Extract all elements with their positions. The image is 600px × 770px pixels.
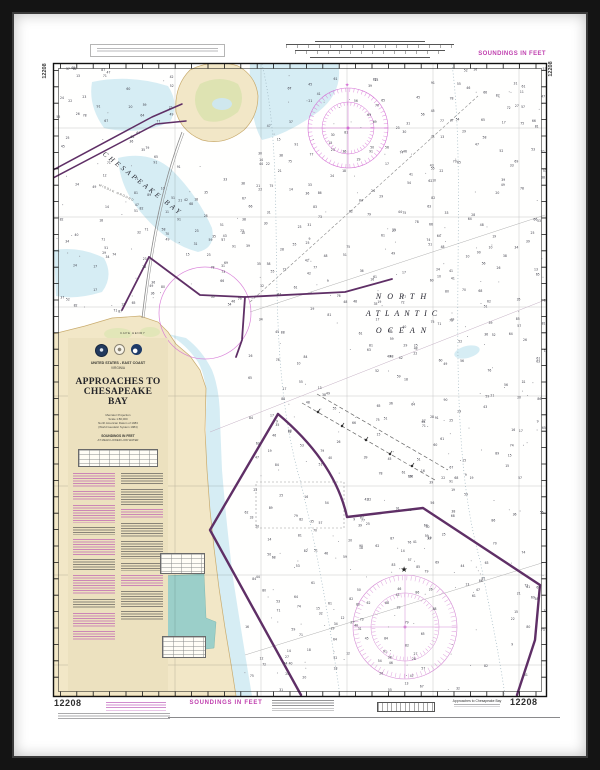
svg-text:25: 25	[414, 343, 418, 347]
svg-text:31: 31	[358, 627, 362, 631]
notes-column-left	[73, 473, 116, 644]
svg-text:15: 15	[186, 253, 190, 257]
label-north-atlantic-ocean: NORTH ATLANTIC OCEAN	[356, 288, 452, 339]
svg-text:82: 82	[299, 518, 303, 522]
svg-text:58: 58	[535, 597, 539, 601]
svg-text:46: 46	[389, 661, 393, 665]
svg-text:74: 74	[510, 444, 514, 448]
notes-column-right	[121, 473, 164, 644]
svg-text:49: 49	[326, 392, 330, 396]
svg-text:29: 29	[462, 129, 466, 133]
svg-text:71: 71	[277, 608, 281, 612]
svg-text:81: 81	[542, 322, 546, 326]
svg-text:20: 20	[285, 672, 289, 676]
svg-text:47: 47	[267, 124, 271, 128]
svg-text:74: 74	[426, 238, 430, 242]
svg-text:63: 63	[256, 441, 260, 445]
svg-text:70: 70	[462, 288, 466, 292]
svg-text:91: 91	[153, 160, 157, 164]
svg-text:86: 86	[537, 397, 541, 401]
svg-text:62: 62	[375, 544, 379, 548]
svg-text:12: 12	[341, 616, 345, 620]
svg-text:61: 61	[381, 233, 385, 237]
svg-text:14: 14	[289, 188, 293, 192]
svg-text:31: 31	[307, 223, 311, 227]
svg-text:91: 91	[177, 218, 181, 222]
svg-text:63: 63	[427, 205, 431, 209]
svg-text:74: 74	[112, 253, 116, 257]
svg-text:37: 37	[289, 120, 293, 124]
svg-text:91: 91	[369, 149, 373, 153]
svg-text:23: 23	[207, 253, 211, 257]
svg-text:35: 35	[275, 423, 279, 427]
svg-text:70: 70	[313, 529, 317, 533]
svg-text:25: 25	[442, 533, 446, 537]
svg-text:89: 89	[495, 452, 499, 456]
svg-text:87: 87	[118, 309, 122, 313]
svg-text:78: 78	[83, 114, 87, 118]
title-block-state: VIRGINIA	[73, 366, 163, 370]
svg-text:23: 23	[298, 225, 302, 229]
svg-text:67: 67	[136, 131, 140, 135]
svg-text:9: 9	[353, 518, 355, 522]
svg-text:76: 76	[337, 294, 341, 298]
svg-text:74: 74	[297, 605, 301, 609]
svg-text:51: 51	[428, 243, 432, 247]
svg-text:75: 75	[402, 211, 406, 215]
bottom-left-fine-print	[58, 713, 170, 720]
svg-text:20: 20	[495, 191, 499, 195]
svg-text:19: 19	[268, 449, 272, 453]
svg-text:58: 58	[267, 262, 271, 266]
svg-text:14: 14	[401, 549, 405, 553]
svg-text:22: 22	[266, 162, 270, 166]
svg-text:81: 81	[369, 343, 373, 347]
svg-text:17: 17	[502, 121, 506, 125]
svg-text:81: 81	[535, 125, 539, 129]
svg-text:70: 70	[453, 159, 457, 163]
svg-text:49: 49	[501, 183, 505, 187]
svg-text:66: 66	[483, 90, 487, 94]
svg-text:66: 66	[352, 421, 356, 425]
svg-text:46: 46	[272, 434, 276, 438]
svg-text:18: 18	[194, 198, 198, 202]
svg-text:66: 66	[533, 218, 537, 222]
svg-text:77: 77	[310, 152, 314, 156]
svg-text:13: 13	[465, 582, 469, 586]
svg-text:65: 65	[71, 66, 75, 70]
svg-text:71: 71	[299, 633, 303, 637]
svg-text:83: 83	[313, 205, 317, 209]
svg-text:26: 26	[523, 338, 527, 342]
svg-text:52: 52	[375, 369, 379, 373]
svg-text:68: 68	[272, 555, 276, 559]
svg-text:38: 38	[451, 510, 455, 514]
svg-text:21: 21	[256, 184, 260, 188]
svg-text:91: 91	[232, 245, 236, 249]
svg-text:39: 39	[501, 178, 505, 182]
svg-text:67: 67	[277, 292, 281, 296]
svg-text:26: 26	[337, 440, 341, 444]
svg-text:45: 45	[275, 330, 279, 334]
svg-text:55: 55	[211, 295, 215, 299]
svg-text:9: 9	[537, 420, 539, 424]
title-block-table	[78, 449, 158, 467]
svg-text:50: 50	[357, 588, 361, 592]
svg-text:79: 79	[294, 514, 298, 518]
svg-text:26: 26	[497, 266, 501, 270]
svg-text:14: 14	[267, 538, 271, 542]
svg-text:47: 47	[255, 456, 259, 460]
svg-text:54: 54	[407, 181, 411, 185]
svg-text:47: 47	[107, 71, 111, 75]
svg-text:24: 24	[60, 96, 64, 100]
svg-text:77: 77	[313, 266, 317, 270]
svg-text:22: 22	[511, 617, 515, 621]
svg-text:68: 68	[454, 476, 458, 480]
svg-text:16: 16	[245, 625, 249, 629]
svg-text:12: 12	[260, 657, 264, 661]
svg-text:45: 45	[308, 83, 312, 87]
svg-text:13: 13	[405, 681, 409, 685]
svg-text:51: 51	[134, 209, 138, 213]
svg-text:70: 70	[493, 542, 497, 546]
svg-text:45: 45	[388, 457, 392, 461]
svg-text:52: 52	[458, 340, 462, 344]
svg-text:62: 62	[245, 511, 249, 515]
svg-text:20: 20	[379, 672, 383, 676]
svg-text:36: 36	[360, 269, 364, 273]
svg-text:34: 34	[106, 255, 110, 259]
svg-text:51: 51	[417, 458, 421, 462]
svg-text:50: 50	[426, 525, 430, 529]
svg-text:84: 84	[384, 636, 388, 640]
svg-text:72: 72	[262, 662, 266, 666]
svg-text:91: 91	[435, 416, 439, 420]
svg-text:66: 66	[130, 135, 134, 139]
svg-text:54: 54	[325, 501, 329, 505]
svg-text:57: 57	[517, 324, 521, 328]
svg-text:82: 82	[431, 196, 435, 200]
svg-text:15: 15	[277, 138, 281, 142]
svg-text:9: 9	[465, 473, 467, 477]
svg-text:26: 26	[409, 475, 413, 479]
svg-text:86: 86	[479, 579, 483, 583]
svg-text:80: 80	[526, 625, 530, 629]
svg-text:91: 91	[97, 104, 101, 108]
svg-text:23: 23	[396, 126, 400, 130]
svg-text:39: 39	[246, 244, 250, 248]
svg-text:11: 11	[520, 90, 524, 94]
svg-text:85: 85	[516, 317, 520, 321]
svg-text:29: 29	[379, 195, 383, 199]
svg-text:50: 50	[370, 145, 374, 149]
svg-text:45: 45	[431, 109, 435, 113]
label-cape-henry: CAPE HENRY	[120, 331, 145, 335]
svg-text:70: 70	[165, 232, 169, 236]
svg-text:82: 82	[356, 603, 360, 607]
svg-text:83: 83	[392, 563, 396, 567]
svg-text:35: 35	[257, 262, 261, 266]
svg-text:60: 60	[430, 278, 434, 282]
svg-text:42: 42	[170, 75, 174, 79]
title-block-notes	[73, 473, 163, 644]
svg-text:82: 82	[74, 303, 78, 307]
svg-text:31: 31	[514, 82, 518, 86]
svg-text:61: 61	[402, 470, 406, 474]
svg-text:88: 88	[281, 331, 285, 335]
bottom-title-subtext	[454, 704, 500, 707]
svg-text:67: 67	[104, 119, 108, 123]
svg-text:38: 38	[279, 153, 283, 157]
svg-text:48: 48	[306, 401, 310, 405]
svg-text:87: 87	[390, 536, 394, 540]
svg-text:29: 29	[331, 627, 335, 631]
svg-text:34: 34	[65, 240, 69, 244]
svg-text:90: 90	[444, 398, 448, 402]
svg-text:30: 30	[264, 222, 268, 226]
svg-text:57: 57	[421, 667, 425, 671]
svg-text:15: 15	[514, 610, 518, 614]
svg-text:89: 89	[269, 506, 273, 510]
svg-text:35: 35	[212, 235, 216, 239]
svg-text:91: 91	[294, 142, 298, 146]
svg-text:78: 78	[450, 97, 454, 101]
svg-text:52: 52	[333, 656, 337, 660]
svg-text:27: 27	[392, 229, 396, 233]
svg-text:42: 42	[399, 356, 403, 360]
svg-text:39: 39	[364, 456, 368, 460]
svg-text:30: 30	[402, 130, 406, 134]
svg-text:82: 82	[349, 597, 353, 601]
svg-text:38: 38	[241, 182, 245, 186]
svg-text:78: 78	[520, 187, 524, 191]
svg-text:66: 66	[249, 204, 253, 208]
svg-text:78: 78	[379, 471, 383, 475]
svg-text:48: 48	[480, 223, 484, 227]
svg-text:59: 59	[143, 103, 147, 107]
svg-text:48: 48	[441, 245, 445, 249]
svg-text:38: 38	[388, 656, 392, 660]
title-block-nation: UNITED STATES - EAST COAST	[73, 361, 163, 365]
svg-text:45: 45	[61, 144, 65, 148]
svg-text:25: 25	[449, 419, 453, 423]
svg-text:21: 21	[490, 394, 494, 398]
svg-text:22: 22	[253, 488, 257, 492]
svg-text:82: 82	[60, 218, 64, 222]
svg-text:58: 58	[483, 136, 487, 140]
svg-text:61: 61	[311, 581, 315, 585]
svg-text:33: 33	[223, 178, 227, 182]
svg-text:65: 65	[421, 632, 425, 636]
svg-text:44: 44	[256, 575, 260, 579]
svg-text:29: 29	[403, 343, 407, 347]
svg-text:41: 41	[449, 269, 453, 273]
svg-text:13: 13	[440, 135, 444, 139]
svg-text:65: 65	[248, 376, 252, 380]
svg-text:74: 74	[521, 550, 525, 554]
svg-text:32: 32	[456, 687, 460, 691]
svg-text:36: 36	[484, 333, 488, 337]
svg-text:56: 56	[421, 113, 425, 117]
svg-text:28: 28	[280, 248, 284, 252]
svg-text:21: 21	[308, 99, 312, 103]
svg-text:82: 82	[304, 549, 308, 553]
svg-text:63: 63	[485, 561, 489, 565]
svg-text:65: 65	[481, 118, 485, 122]
svg-text:61: 61	[522, 85, 526, 89]
svg-text:41: 41	[317, 92, 321, 96]
svg-text:75: 75	[269, 184, 273, 188]
svg-text:79: 79	[367, 212, 371, 216]
bottom-right-title-group: Approaches to Chesapeake Bay	[444, 699, 510, 707]
framed-nautical-chart: ✦ ★ 485317342529521210286842382562653336…	[0, 0, 600, 770]
svg-text:59: 59	[464, 492, 468, 496]
svg-text:60: 60	[433, 443, 437, 447]
bottom-magenta-note-block	[106, 702, 166, 712]
svg-text:34: 34	[334, 622, 338, 626]
svg-text:35: 35	[310, 519, 314, 523]
svg-text:38: 38	[242, 218, 246, 222]
svg-text:82: 82	[349, 210, 353, 214]
svg-text:28: 28	[430, 415, 434, 419]
svg-text:20: 20	[348, 539, 352, 543]
svg-text:39: 39	[489, 321, 493, 325]
svg-text:54: 54	[378, 659, 382, 663]
svg-text:72: 72	[507, 106, 511, 110]
svg-text:54: 54	[456, 117, 460, 121]
svg-text:26: 26	[76, 112, 80, 116]
svg-text:56: 56	[482, 261, 486, 265]
svg-text:52: 52	[66, 297, 70, 301]
svg-text:60: 60	[126, 87, 130, 91]
ocean-label-line2: ATLANTIC	[356, 305, 452, 322]
svg-text:68: 68	[189, 202, 193, 206]
svg-text:81: 81	[327, 313, 331, 317]
svg-text:59: 59	[485, 395, 489, 399]
scale-line	[315, 41, 425, 42]
svg-text:49: 49	[149, 284, 153, 288]
svg-text:26: 26	[249, 354, 253, 358]
svg-text:88: 88	[433, 607, 437, 611]
svg-text:52: 52	[170, 84, 174, 88]
svg-text:44: 44	[398, 210, 402, 214]
svg-text:12: 12	[346, 651, 350, 655]
svg-text:15: 15	[508, 453, 512, 457]
svg-text:41: 41	[451, 277, 455, 281]
svg-text:61: 61	[328, 601, 332, 605]
svg-text:40: 40	[328, 456, 332, 460]
svg-text:86: 86	[415, 591, 419, 595]
svg-text:66: 66	[220, 279, 224, 283]
svg-text:20: 20	[255, 524, 259, 528]
svg-text:20: 20	[517, 395, 521, 399]
svg-text:64: 64	[284, 661, 288, 665]
svg-text:71: 71	[101, 238, 105, 242]
svg-text:61: 61	[472, 594, 476, 598]
svg-text:80: 80	[262, 589, 266, 593]
svg-text:53: 53	[537, 219, 541, 223]
commerce-seal-icon	[95, 344, 108, 357]
svg-text:49: 49	[443, 362, 447, 366]
svg-text:76: 76	[487, 369, 491, 373]
svg-text:45: 45	[416, 96, 420, 100]
agency-logos	[73, 344, 163, 357]
svg-text:67: 67	[288, 86, 292, 90]
svg-text:21: 21	[169, 105, 173, 109]
svg-text:61: 61	[526, 585, 530, 589]
svg-text:65: 65	[132, 301, 136, 305]
svg-text:46: 46	[231, 300, 235, 304]
svg-text:75: 75	[346, 245, 350, 249]
svg-text:71: 71	[145, 227, 149, 231]
svg-text:78: 78	[276, 358, 280, 362]
svg-text:15: 15	[328, 141, 332, 145]
svg-text:69: 69	[373, 120, 377, 124]
svg-text:32: 32	[260, 284, 264, 288]
svg-text:18: 18	[404, 378, 408, 382]
svg-text:12: 12	[121, 302, 125, 306]
svg-text:16: 16	[421, 469, 425, 473]
svg-text:10: 10	[437, 274, 441, 278]
svg-text:67: 67	[536, 586, 540, 590]
svg-text:57: 57	[518, 476, 522, 480]
svg-text:64: 64	[294, 595, 298, 599]
svg-text:53: 53	[276, 600, 280, 604]
svg-text:44: 44	[259, 162, 263, 166]
svg-text:67: 67	[449, 465, 453, 469]
svg-text:79: 79	[320, 449, 324, 453]
svg-text:16: 16	[304, 495, 308, 499]
svg-text:29: 29	[457, 409, 461, 413]
svg-text:59: 59	[343, 555, 347, 559]
svg-text:68: 68	[451, 514, 455, 518]
svg-text:10: 10	[432, 179, 436, 183]
svg-text:22: 22	[439, 169, 443, 173]
svg-text:53: 53	[531, 148, 535, 152]
svg-text:42: 42	[184, 198, 188, 202]
chart-title-line2: CHESAPEAKE BAY	[73, 387, 163, 407]
svg-text:36: 36	[305, 192, 309, 196]
svg-text:51: 51	[484, 304, 488, 308]
svg-text:22: 22	[413, 352, 417, 356]
soundings-datum-note: AT MEAN LOWER LOW WATER	[73, 438, 163, 442]
svg-text:14: 14	[287, 649, 291, 653]
svg-text:48: 48	[343, 300, 347, 304]
svg-text:29: 29	[310, 307, 314, 311]
svg-text:81: 81	[298, 533, 302, 537]
svg-text:61: 61	[440, 437, 444, 441]
svg-text:34: 34	[259, 318, 263, 322]
svg-text:75: 75	[376, 418, 380, 422]
svg-text:32: 32	[137, 231, 141, 235]
svg-text:64: 64	[411, 402, 415, 406]
svg-text:17: 17	[93, 288, 97, 292]
svg-text:69: 69	[514, 160, 518, 164]
svg-text:36: 36	[129, 140, 133, 144]
svg-text:10: 10	[466, 254, 470, 258]
svg-text:75: 75	[520, 122, 524, 126]
svg-text:47: 47	[475, 142, 479, 146]
svg-text:17: 17	[93, 265, 97, 269]
coastal-table-upper	[160, 553, 205, 574]
svg-text:20: 20	[302, 675, 306, 679]
svg-text:16: 16	[370, 277, 374, 281]
svg-text:47: 47	[476, 588, 480, 592]
svg-text:84: 84	[304, 355, 308, 359]
svg-text:55: 55	[333, 407, 337, 411]
svg-text:24: 24	[371, 189, 375, 193]
